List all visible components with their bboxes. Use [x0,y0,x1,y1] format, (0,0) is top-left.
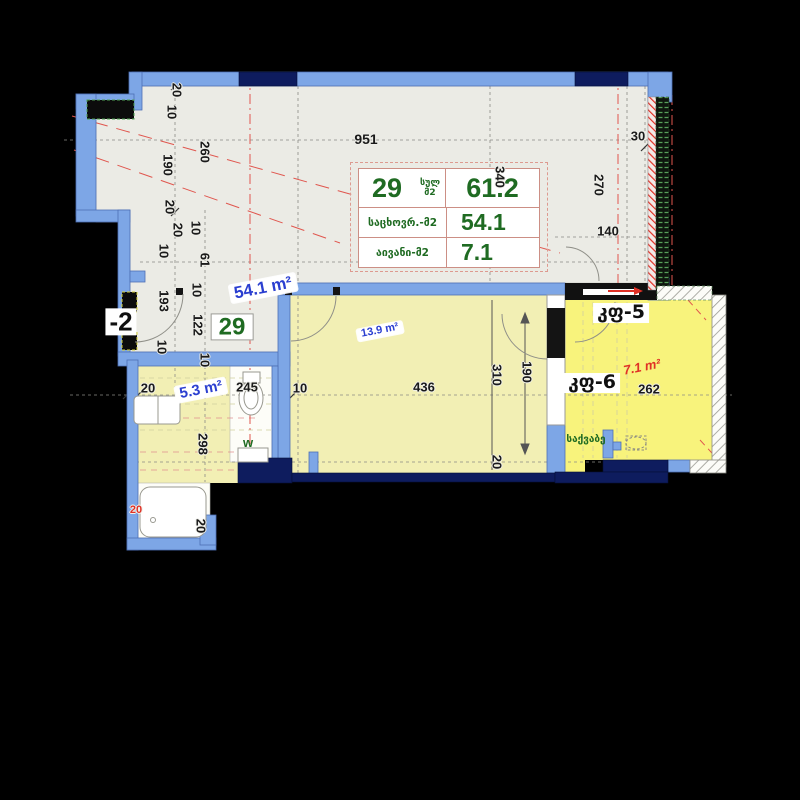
balcony-value: 7.1 [446,238,539,267]
total-label: სულ მ2 [415,169,445,207]
living-value: 54.1 [446,208,539,237]
table-row-living: საცხოვრ.-მ2 54.1 [359,207,539,237]
floor-plan-svg [0,0,800,800]
bathtub [140,487,206,537]
floor-plan-canvas: 29 სულ მ2 61.2 საცხოვრ.-მ2 54.1 აივანი-მ… [0,0,800,800]
toilet-tank [243,372,260,383]
table-row-total: 29 სულ მ2 61.2 [359,169,539,207]
unit-number: 29 [359,169,415,207]
balcony-label: აივანი-მ2 [359,238,446,267]
living-label: საცხოვრ.-მ2 [359,208,446,237]
total-value: 61.2 [445,169,539,207]
bedroom-right-wall [547,295,565,425]
unit-info-table: 29 სულ მ2 61.2 საცხოვრ.-მ2 54.1 აივანი-მ… [358,168,540,268]
balcony-window-band [565,283,657,300]
balcony-floor [565,300,712,460]
wc-door [238,448,268,462]
bedroom-floor [290,295,555,473]
table-row-balcony: აივანი-მ2 7.1 [359,237,539,267]
washer [134,396,180,424]
